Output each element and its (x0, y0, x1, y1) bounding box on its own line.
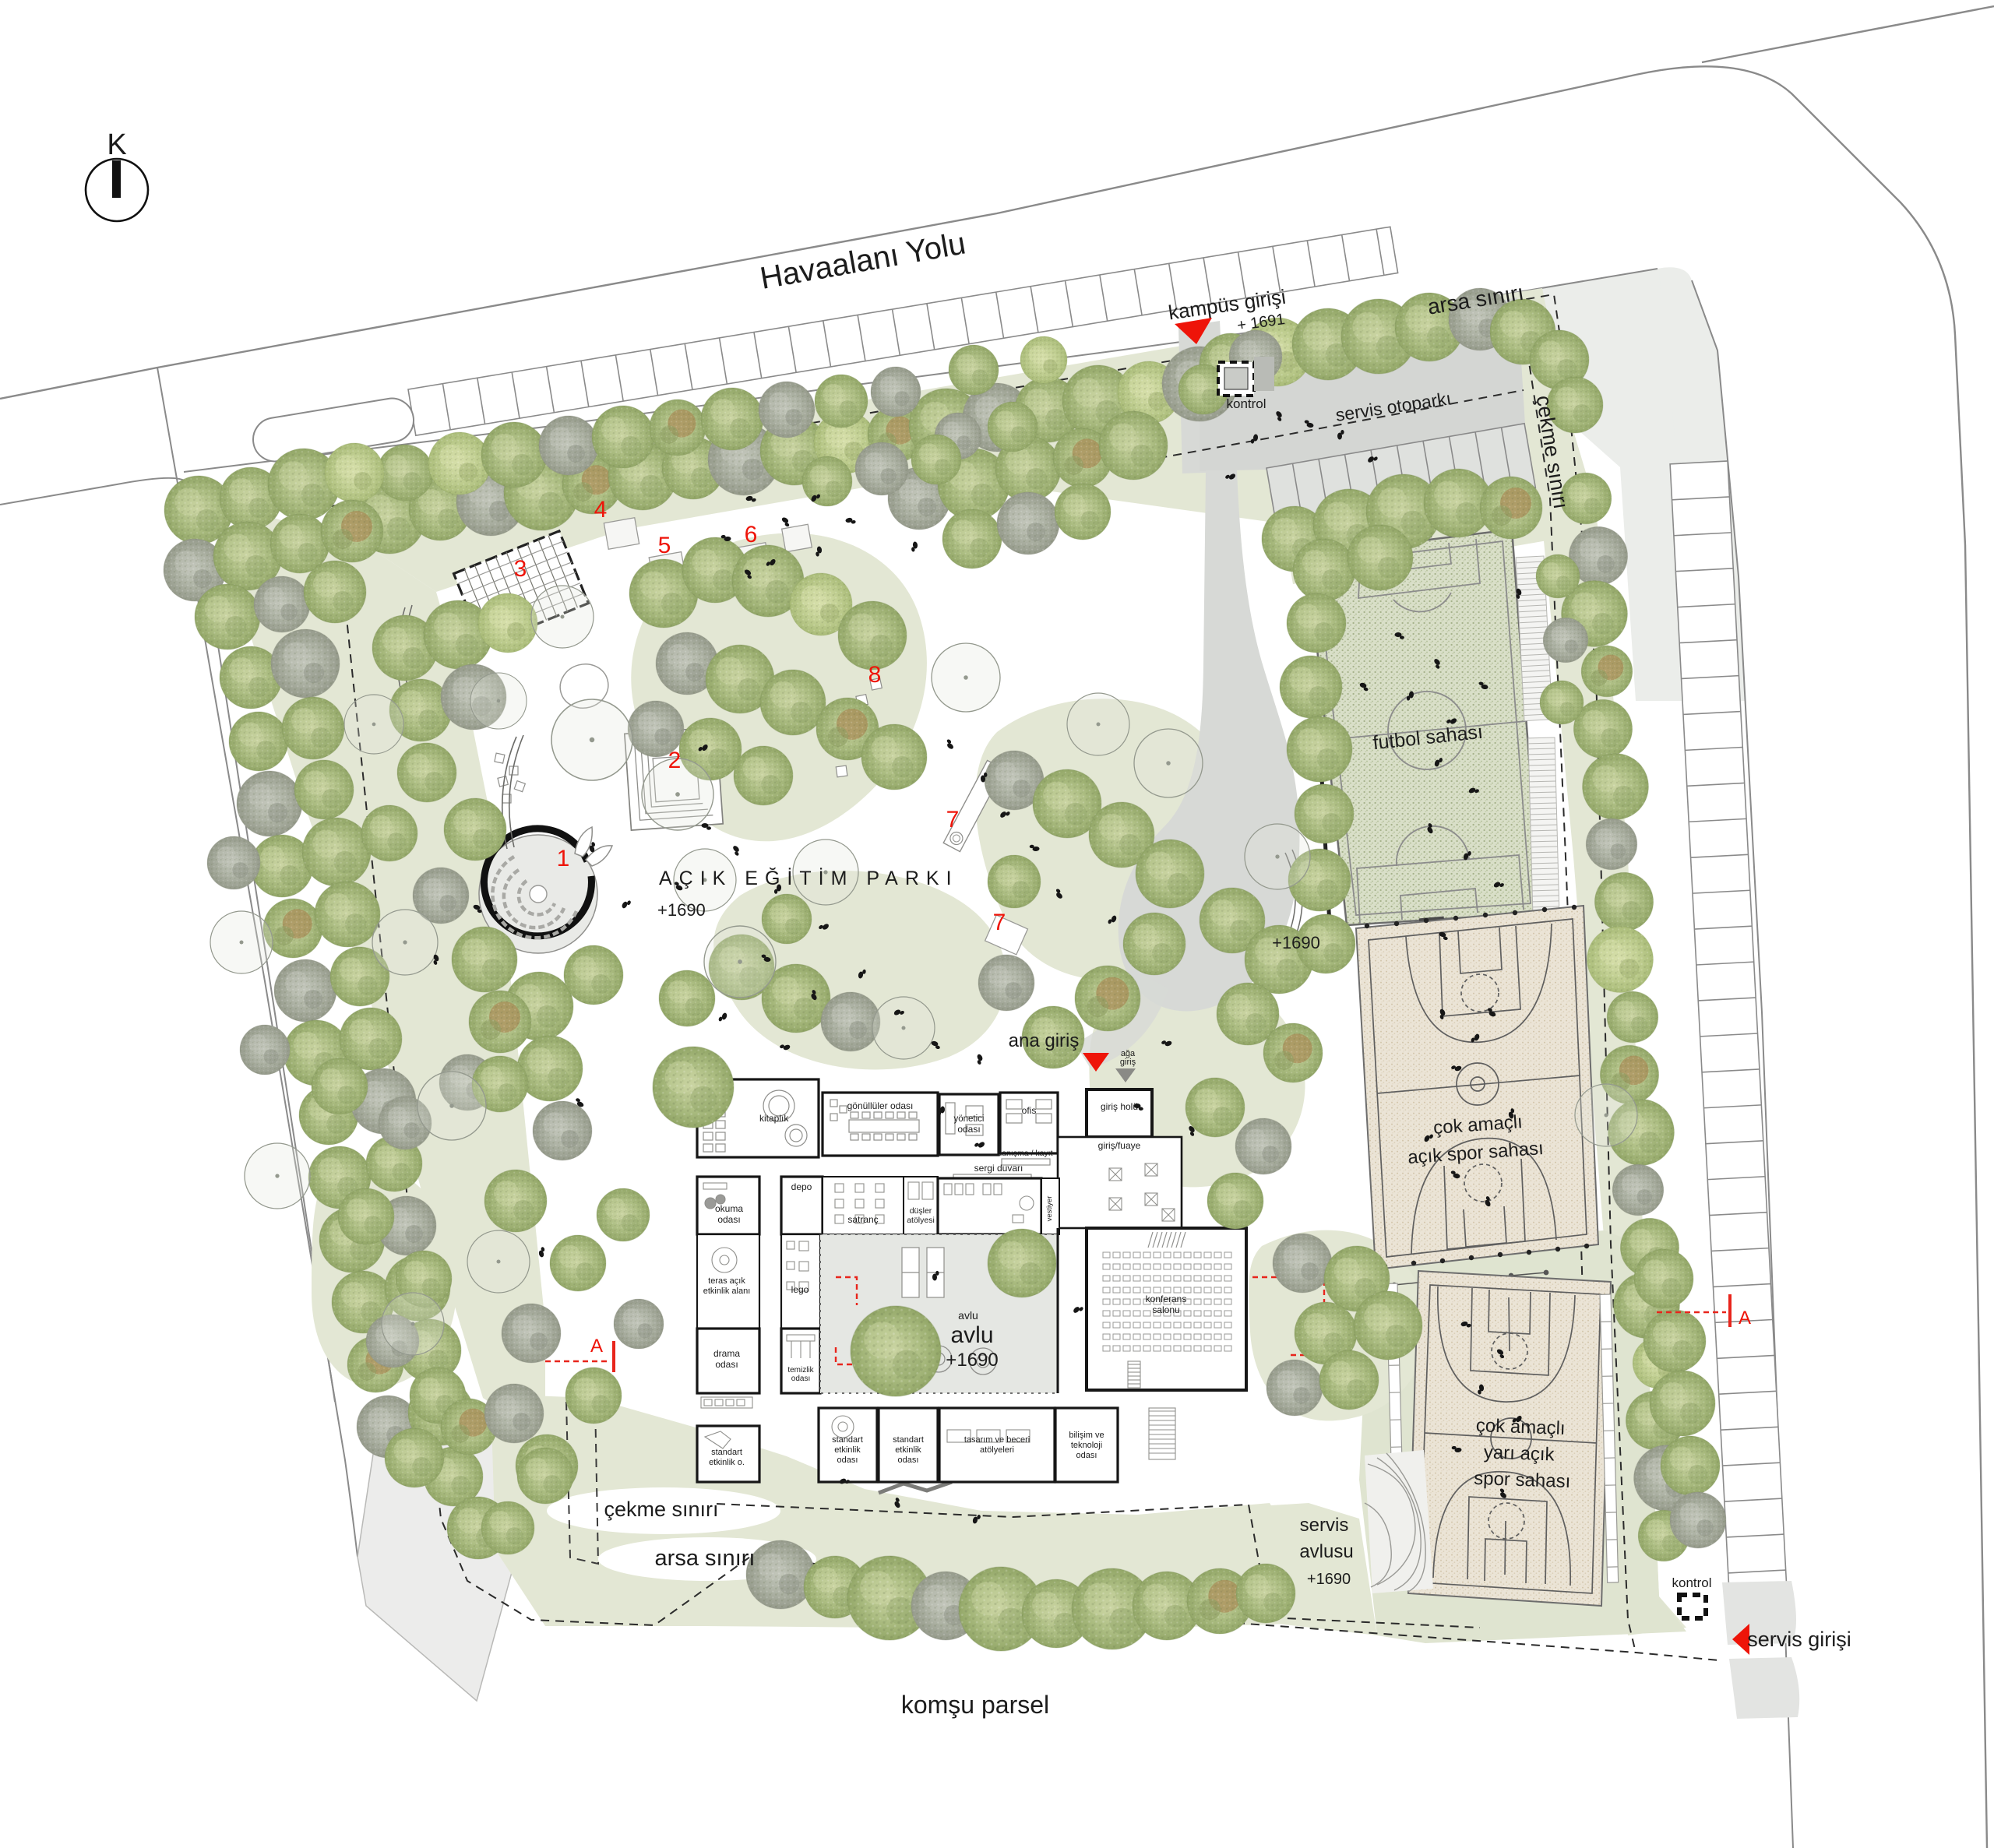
svg-text:temizlik: temizlik (787, 1366, 814, 1375)
svg-text:+1690: +1690 (1307, 1571, 1351, 1588)
svg-text:etkinlik alanı: etkinlik alanı (703, 1287, 751, 1296)
svg-text:giriş holü: giriş holü (1101, 1101, 1138, 1112)
svg-text:drama: drama (713, 1348, 740, 1359)
svg-text:tasarım ve beceri: tasarım ve beceri (964, 1435, 1030, 1445)
svg-text:yönetici: yönetici (954, 1114, 985, 1124)
svg-text:etkinlik: etkinlik (834, 1445, 861, 1455)
svg-text:standart: standart (893, 1435, 924, 1445)
svg-text:kitaplık: kitaplık (759, 1113, 789, 1124)
svg-text:kontrol: kontrol (1672, 1575, 1711, 1590)
svg-text:servis: servis (1300, 1515, 1349, 1536)
svg-text:okuma: okuma (715, 1203, 743, 1214)
svg-text:çok amaçlı: çok amaçlı (1475, 1415, 1566, 1439)
svg-text:avlusu: avlusu (1299, 1541, 1353, 1562)
svg-text:5: 5 (658, 533, 671, 558)
svg-text:odası: odası (898, 1456, 919, 1465)
svg-text:2: 2 (668, 748, 682, 773)
svg-text:danışma / kayıt: danışma / kayıt (997, 1149, 1052, 1158)
svg-text:odası: odası (791, 1375, 810, 1383)
svg-text:ofis: ofis (1022, 1105, 1037, 1116)
svg-text:konferans: konferans (1146, 1294, 1187, 1304)
svg-text:1: 1 (557, 846, 570, 871)
svg-text:sergi duvarı: sergi duvarı (974, 1163, 1023, 1174)
svg-text:4: 4 (594, 497, 608, 523)
svg-text:düşler: düşler (910, 1206, 932, 1216)
svg-text:bilişim ve: bilişim ve (1069, 1431, 1104, 1440)
svg-text:8: 8 (868, 662, 882, 688)
svg-text:çekme sınırı: çekme sınırı (604, 1498, 718, 1521)
svg-text:etkinlik o.: etkinlik o. (709, 1458, 745, 1467)
svg-text:depo: depo (791, 1181, 812, 1192)
svg-text:7: 7 (946, 807, 960, 832)
svg-text:+1690: +1690 (657, 900, 706, 920)
svg-text:6: 6 (745, 522, 758, 547)
svg-text:atölyesi: atölyesi (907, 1216, 935, 1225)
svg-text:salonu: salonu (1152, 1304, 1179, 1315)
svg-text:odası: odası (957, 1124, 980, 1135)
svg-text:giriş: giriş (1120, 1058, 1136, 1067)
svg-text:komşu parsel: komşu parsel (901, 1691, 1049, 1719)
svg-text:3: 3 (514, 556, 527, 582)
svg-text:+1690: +1690 (946, 1350, 998, 1371)
svg-text:vestiyer: vestiyer (1045, 1196, 1054, 1222)
svg-text:7: 7 (993, 910, 1006, 935)
svg-text:servis girişi: servis girişi (1747, 1628, 1851, 1651)
svg-text:lego: lego (791, 1284, 809, 1295)
svg-text:standart: standart (832, 1435, 863, 1445)
svg-text:gönüllüler odası: gönüllüler odası (847, 1100, 914, 1111)
svg-text:ana giriş: ana giriş (1009, 1030, 1080, 1051)
svg-text:giriş/fuaye: giriş/fuaye (1098, 1140, 1141, 1151)
svg-text:standart: standart (711, 1448, 742, 1457)
svg-text:A: A (590, 1336, 603, 1357)
svg-text:avlu: avlu (950, 1322, 993, 1348)
svg-text:AÇIK EĞİTİM PARKI: AÇIK EĞİTİM PARKI (659, 867, 959, 889)
svg-text:arsa sınırı: arsa sınırı (655, 1546, 756, 1571)
svg-text:K: K (107, 128, 126, 161)
svg-text:spor sahası: spor sahası (1474, 1468, 1571, 1492)
svg-text:yarı açık: yarı açık (1483, 1441, 1555, 1465)
svg-text:odası: odası (717, 1214, 740, 1225)
svg-text:odası: odası (1076, 1451, 1097, 1460)
svg-text:avlu: avlu (958, 1309, 978, 1322)
svg-text:teras açık: teras açık (708, 1276, 745, 1286)
svg-text:A: A (1739, 1308, 1751, 1329)
svg-text:kontrol: kontrol (1226, 396, 1266, 411)
svg-text:satranç: satranç (847, 1214, 878, 1225)
svg-text:+1690: +1690 (1272, 933, 1320, 952)
svg-text:atölyeleri: atölyeleri (980, 1445, 1014, 1455)
svg-text:odası: odası (715, 1359, 738, 1370)
svg-text:etkinlik: etkinlik (895, 1445, 921, 1455)
svg-text:teknoloji: teknoloji (1071, 1441, 1102, 1450)
svg-text:odası: odası (837, 1456, 858, 1465)
